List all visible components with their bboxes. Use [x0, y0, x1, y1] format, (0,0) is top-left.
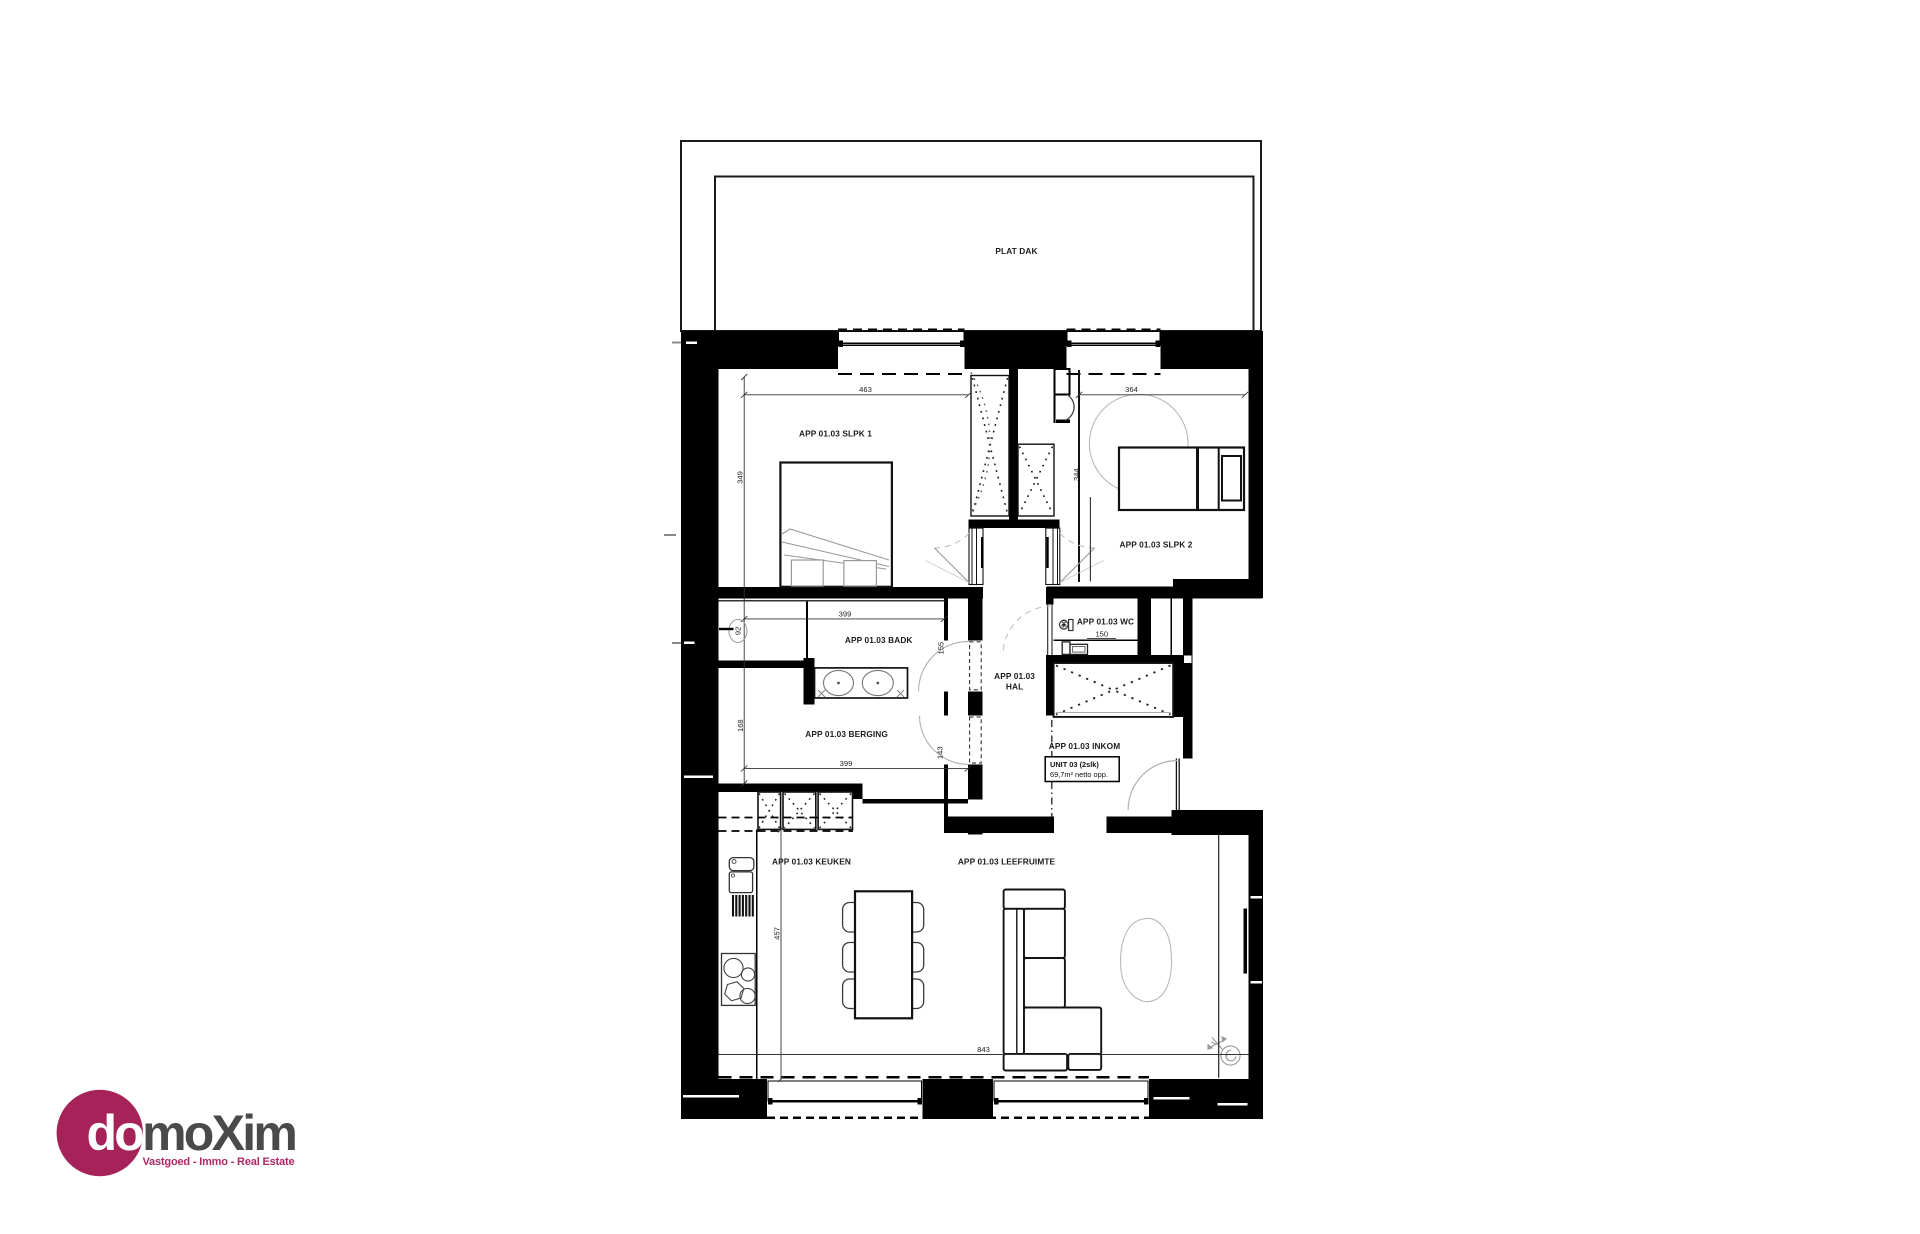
svg-text:92: 92: [734, 627, 743, 635]
svg-text:143: 143: [935, 746, 944, 759]
svg-text:APP 01.03 WC: APP 01.03 WC: [1077, 617, 1134, 627]
svg-text:APP 01.03 INKOM: APP 01.03 INKOM: [1049, 741, 1120, 751]
svg-text:843: 843: [977, 1045, 990, 1054]
svg-text:399: 399: [839, 609, 852, 618]
svg-text:APP 01.03 SLPK 2: APP 01.03 SLPK 2: [1120, 540, 1193, 550]
svg-text:APP 01.03 BADK: APP 01.03 BADK: [845, 635, 913, 645]
svg-text:Vastgoed - Immo - Real Estate: Vastgoed - Immo - Real Estate: [143, 1156, 295, 1168]
svg-text:HAL: HAL: [1006, 682, 1023, 692]
svg-text:344: 344: [1072, 468, 1081, 481]
svg-text:364: 364: [1125, 385, 1138, 394]
svg-text:APP 01.03 LEEFRUIMTE: APP 01.03 LEEFRUIMTE: [958, 857, 1056, 867]
svg-text:domoXim: domoXim: [87, 1105, 296, 1161]
svg-text:463: 463: [859, 385, 872, 394]
svg-text:APP 01.03: APP 01.03: [994, 671, 1035, 681]
svg-text:69,7m² netto opp.: 69,7m² netto opp.: [1050, 770, 1108, 779]
svg-text:APP 01.03 SLPK 1: APP 01.03 SLPK 1: [799, 429, 872, 439]
svg-text:457: 457: [772, 927, 781, 940]
svg-text:UNIT 03 (2slk): UNIT 03 (2slk): [1050, 760, 1099, 769]
svg-text:399: 399: [840, 759, 853, 768]
svg-text:150: 150: [1095, 630, 1108, 639]
svg-text:155: 155: [936, 642, 945, 655]
svg-text:APP 01.03 BERGING: APP 01.03 BERGING: [805, 729, 888, 739]
svg-text:APP 01.03 KEUKEN: APP 01.03 KEUKEN: [772, 857, 851, 867]
svg-text:90: 90: [1059, 619, 1068, 627]
svg-text:PLAT DAK: PLAT DAK: [995, 246, 1037, 256]
svg-text:349: 349: [736, 471, 745, 484]
svg-text:168: 168: [736, 719, 745, 732]
